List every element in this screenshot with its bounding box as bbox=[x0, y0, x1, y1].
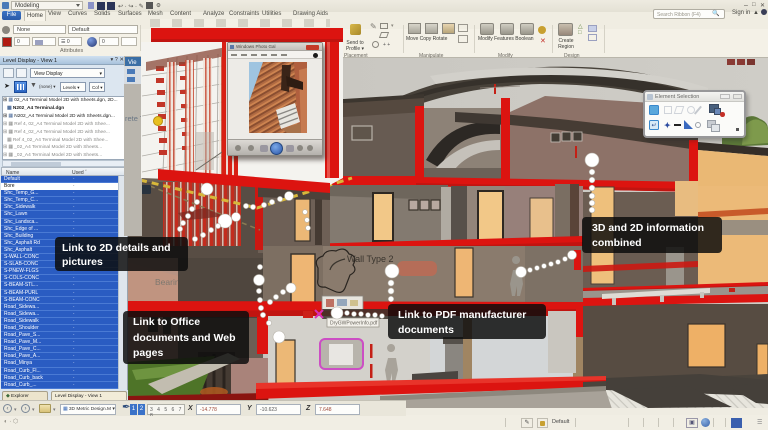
svg-text:Wall Type 2: Wall Type 2 bbox=[347, 254, 394, 264]
